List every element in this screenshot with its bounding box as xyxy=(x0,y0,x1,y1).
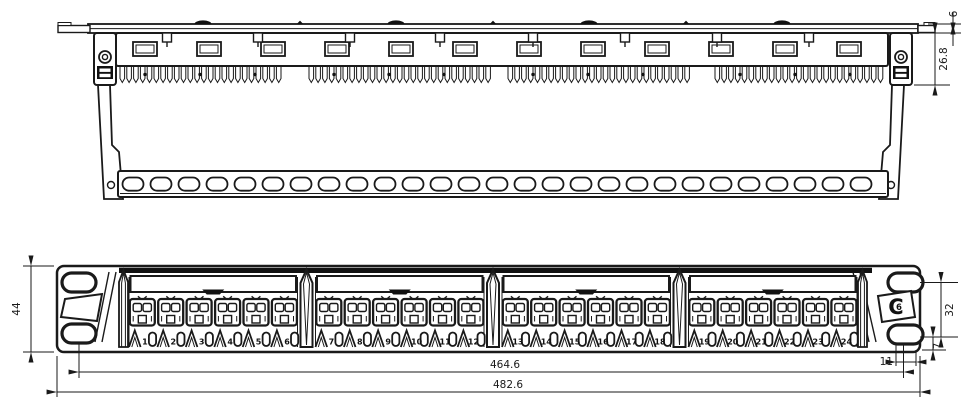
cat6-mark-6: 6 xyxy=(896,303,902,313)
dim-hole-to-bottom: 7 xyxy=(922,337,946,350)
port-number: 7 xyxy=(329,338,335,347)
port-number: 10 xyxy=(411,338,423,347)
rj45-port xyxy=(775,299,800,326)
cable-tie-slot xyxy=(739,178,760,191)
port-number: 12 xyxy=(468,338,479,347)
dim-text-overall-width: 482.6 xyxy=(493,379,523,391)
cable-tie-slot xyxy=(795,178,816,191)
label-cutout xyxy=(133,42,157,56)
cable-tie-slot xyxy=(207,178,228,191)
rack-ear-edge-right xyxy=(918,26,935,33)
label-cutout xyxy=(197,42,221,56)
cable-tie-slot xyxy=(403,178,424,191)
port-number: 14 xyxy=(541,338,553,347)
rack-ear-edge-left xyxy=(58,26,90,33)
label-cutout xyxy=(325,42,349,56)
patch-panel-technical-drawing: 6 26.8 C 6 12345678910111213141516171819… xyxy=(0,0,966,403)
flange-tick xyxy=(490,21,496,24)
flange-bump xyxy=(388,20,405,24)
dim-ear-hole-spacing: 32 xyxy=(920,283,958,338)
cable-tie-slot xyxy=(627,178,648,191)
rj45-port xyxy=(272,299,297,326)
cable-guide-bullet xyxy=(364,333,371,347)
rj45-port xyxy=(617,299,642,326)
label-cutout xyxy=(389,42,413,56)
port-number: 20 xyxy=(727,338,739,347)
rj45-port xyxy=(746,299,771,326)
bracket-latch-slot xyxy=(100,74,111,77)
port-number: 13 xyxy=(512,338,523,347)
idc-rivet xyxy=(332,73,335,76)
cable-tie-slot xyxy=(571,178,592,191)
dim-rear-depth: 26.8 xyxy=(914,33,950,85)
retention-clip xyxy=(254,33,263,42)
cable-guide-bullet xyxy=(335,333,342,347)
dim-panel-height: 44 xyxy=(11,266,54,352)
cable-tie-slot xyxy=(599,178,620,191)
cable-tie-slot xyxy=(235,178,256,191)
mounting-slot-bottom-right xyxy=(888,325,923,344)
idc-rivet xyxy=(793,73,796,76)
idc-comb xyxy=(309,66,490,83)
cable-tie-slot xyxy=(459,178,480,191)
retention-clip xyxy=(805,33,814,42)
drawing-sheet: 6 26.8 C 6 12345678910111213141516171819… xyxy=(0,0,966,403)
idc-rivet xyxy=(143,73,146,76)
dim-text-mounting-centers: 464.6 xyxy=(490,359,520,371)
cable-tie-slot xyxy=(487,178,508,191)
port-number: 1 xyxy=(142,338,148,347)
rj45-port xyxy=(645,299,670,326)
cable-guide-bullet xyxy=(149,333,156,347)
bracket-latch-slot xyxy=(896,69,907,72)
dim-text-flange-height: 6 xyxy=(948,10,960,17)
retention-clip xyxy=(436,33,445,42)
rj45-port xyxy=(560,299,585,326)
cable-tie-slot xyxy=(515,178,536,191)
label-cutout xyxy=(261,42,285,56)
bracket-latch-slot xyxy=(896,74,907,77)
cable-tie-slot xyxy=(347,178,368,191)
dim-text-ear-hole-spacing: 32 xyxy=(944,303,956,316)
dim-text-rear-depth: 26.8 xyxy=(938,47,950,70)
cable-guide-bullet xyxy=(392,333,399,347)
label-cutout xyxy=(837,42,861,56)
rj45-port xyxy=(503,299,528,326)
front-view: C 6 123456789101112131415161718192021222… xyxy=(11,266,958,397)
edge-pillar-right xyxy=(858,270,867,347)
cable-tie-slot xyxy=(711,178,732,191)
cable-tie-slot xyxy=(319,178,340,191)
label-holder-left xyxy=(61,294,102,321)
dim-text-hole-to-side: 11 xyxy=(880,356,893,368)
cable-tie-slot xyxy=(543,178,564,191)
cable-tie-slot xyxy=(851,178,872,191)
dim-text-panel-height: 44 xyxy=(11,302,23,316)
cable-tie-slot xyxy=(151,178,172,191)
cable-tie-slot xyxy=(655,178,676,191)
idc-combs xyxy=(120,66,883,83)
flange-bump xyxy=(195,20,212,24)
port-number: 3 xyxy=(199,338,205,347)
rj45-port xyxy=(158,299,183,326)
rj45-port xyxy=(531,299,556,326)
port-number: 16 xyxy=(598,338,610,347)
label-cutout xyxy=(517,42,541,56)
port-number: 17 xyxy=(626,338,637,347)
cable-tie-slot xyxy=(263,178,284,191)
cable-tie-slot xyxy=(823,178,844,191)
idc-rivet xyxy=(738,73,741,76)
cable-tie-slot xyxy=(179,178,200,191)
mounting-slot-top-left xyxy=(62,273,96,292)
cable-guide-bullet xyxy=(291,333,298,347)
port-number: 24 xyxy=(841,338,853,347)
cable-guide-bullet xyxy=(206,333,213,347)
retention-clip xyxy=(621,33,630,42)
flange-tick xyxy=(297,21,303,24)
port-number: 6 xyxy=(284,338,290,347)
dim-overall-width: 482.6 xyxy=(57,356,920,397)
dim-text-hole-to-bottom: 7 xyxy=(932,343,944,350)
rj45-port xyxy=(187,299,212,326)
rj45-port xyxy=(244,299,269,326)
label-cutout xyxy=(645,42,669,56)
retention-clip xyxy=(163,33,172,42)
cable-tie-slot xyxy=(291,178,312,191)
cable-tie-slot xyxy=(683,178,704,191)
idc-rivet xyxy=(586,73,589,76)
rj45-port xyxy=(316,299,341,326)
cable-tie-slot xyxy=(375,178,396,191)
rj45-port xyxy=(130,299,155,326)
port-number: 9 xyxy=(385,338,391,347)
port-number: 18 xyxy=(654,338,666,347)
edge-pillar-left xyxy=(119,270,128,347)
port-number: 11 xyxy=(440,338,452,347)
rj45-port xyxy=(458,299,483,326)
flange-tick xyxy=(683,21,689,24)
idc-rivet xyxy=(198,73,201,76)
port-number: 21 xyxy=(756,338,768,347)
port-number: 2 xyxy=(171,338,177,347)
rj45-port xyxy=(831,299,856,326)
port-number: 23 xyxy=(813,338,824,347)
label-cutout xyxy=(581,42,605,56)
rj45-port xyxy=(803,299,828,326)
rj45-port xyxy=(402,299,427,326)
rj45-port xyxy=(718,299,743,326)
idc-rivet xyxy=(387,73,390,76)
idc-rivet xyxy=(253,73,256,76)
idc-rivet xyxy=(641,73,644,76)
retention-clip xyxy=(346,33,355,42)
port-number: 5 xyxy=(256,338,262,347)
port-number: 4 xyxy=(227,338,233,347)
top-trim-band xyxy=(119,268,872,273)
rj45-port xyxy=(215,299,240,326)
label-cutout xyxy=(453,42,477,56)
rj45-port xyxy=(373,299,398,326)
rj45-port xyxy=(588,299,613,326)
mounting-slot-top-right xyxy=(888,273,923,292)
port-number: 22 xyxy=(784,338,795,347)
bracket-latch-slot xyxy=(100,69,111,72)
rack-ear-step-left xyxy=(58,23,71,26)
idc-rivet xyxy=(442,73,445,76)
rj45-port xyxy=(430,299,455,326)
idc-rivet xyxy=(531,73,534,76)
port-number: 15 xyxy=(569,338,581,347)
port-number: 19 xyxy=(699,338,711,347)
mounting-slot-bottom-left xyxy=(62,324,96,343)
idc-rivet xyxy=(848,73,851,76)
label-cutout xyxy=(773,42,797,56)
top-view-rear: 6 26.8 xyxy=(58,10,961,199)
flange-bump xyxy=(774,20,791,24)
cable-tie-slot xyxy=(767,178,788,191)
rj45-port xyxy=(345,299,370,326)
idc-comb xyxy=(508,66,689,83)
cable-tie-slot xyxy=(431,178,452,191)
retention-clip xyxy=(529,33,538,42)
port-number: 8 xyxy=(357,338,363,347)
retention-clip xyxy=(713,33,722,42)
cable-tie-slot xyxy=(123,178,144,191)
rj45-port xyxy=(689,299,714,326)
label-cutout xyxy=(709,42,733,56)
flange-bump xyxy=(581,20,598,24)
cable-guide-bullet xyxy=(177,333,184,347)
cable-guide-bullet xyxy=(263,333,270,347)
cable-guide-bullet xyxy=(234,333,241,347)
